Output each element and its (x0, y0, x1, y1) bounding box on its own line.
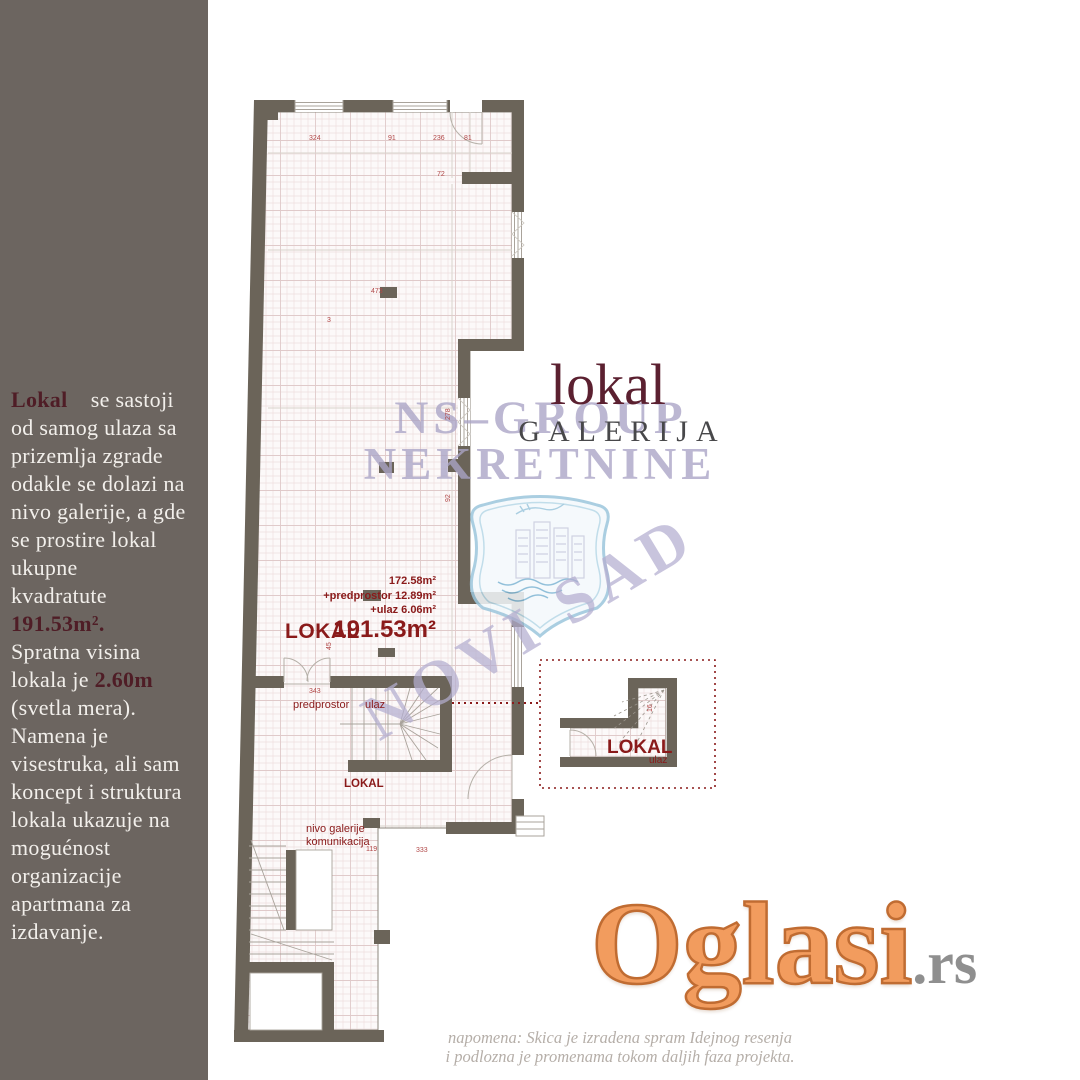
title-galerija: GALERIJA (518, 415, 725, 448)
title-lokal: lokal (550, 352, 666, 417)
svg-text:473: 473 (371, 288, 383, 295)
listing-image: Lokal se sastoji od samog ulaza sa prize… (0, 0, 1080, 1080)
svg-text:45: 45 (326, 642, 333, 650)
area-line-2: +predprostor 12.89m² (323, 590, 436, 602)
oglasi-logo[interactable]: Oglasi.rs (591, 885, 977, 1003)
area-line-1: 172.58m² (389, 575, 436, 587)
area-total: 191.53m² (333, 616, 436, 643)
svg-text:324: 324 (309, 135, 321, 142)
oglasi-logo-text: Oglasi (591, 878, 912, 1009)
plan-title: lokal GALERIJA (518, 352, 725, 448)
svg-text:278: 278 (445, 408, 452, 420)
svg-text:3: 3 (327, 317, 331, 324)
room-bottom-left (250, 973, 322, 1030)
label-nivo-galerije: nivo galerije (306, 823, 365, 835)
inset-door-gap (560, 728, 570, 757)
label-lokal-small: LOKAL (344, 778, 384, 790)
window-top-1 (295, 100, 343, 112)
label-predprostor: predprostor (293, 699, 350, 711)
svg-text:91: 91 (388, 135, 396, 142)
label-komunikacija: komunikacija (306, 836, 370, 848)
svg-text:81: 81 (464, 135, 472, 142)
svg-text:16: 16 (647, 704, 654, 712)
window-right-1 (512, 212, 524, 258)
note-line-1: napomena: Skica je izradena spram Idejno… (440, 1028, 800, 1047)
window-top-2 (393, 100, 447, 112)
svg-text:92: 92 (445, 494, 452, 502)
svg-text:333: 333 (416, 847, 428, 854)
window-sill-bottom-right (516, 816, 544, 836)
label-ulaz: ulaz (365, 699, 385, 711)
svg-text:236: 236 (433, 135, 445, 142)
inset-label-ulaz: ulaz (649, 755, 667, 766)
svg-text:343: 343 (309, 688, 321, 695)
svg-text:72: 72 (437, 171, 445, 178)
note-line-2: i podlozna je promenama tokom daljih faz… (440, 1047, 800, 1066)
area-line-3: +ulaz 6.06m² (370, 604, 436, 616)
svg-text:119: 119 (366, 846, 377, 853)
oglasi-logo-suffix: .rs (912, 930, 977, 996)
disclaimer-note: napomena: Skica je izradena spram Idejno… (440, 1028, 800, 1066)
